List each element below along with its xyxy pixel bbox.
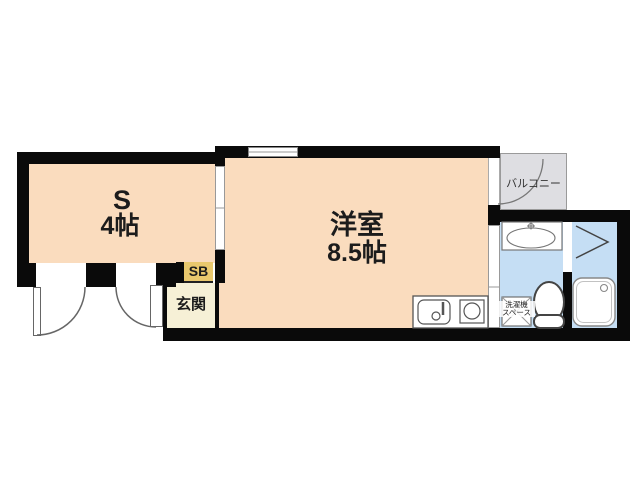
- wall-bottom-storage-seg1: [17, 263, 36, 287]
- window-top: [248, 147, 298, 157]
- wall-partition-top: [215, 146, 225, 166]
- storage-room-size: 4帖: [90, 213, 150, 239]
- storage-door-opening: [36, 263, 86, 287]
- balcony-door-opening: [488, 158, 500, 205]
- bathroom-door-opening: [563, 222, 572, 272]
- storage-door-arc: [37, 287, 85, 335]
- partition-sliding-door: [215, 166, 225, 250]
- wall-bottom-main: [163, 328, 630, 341]
- wall-partition-bottom: [215, 250, 225, 283]
- western-room-size: 8.5帖: [317, 240, 397, 266]
- floor-plan: S 4帖 洋室 8.5帖 バルコニー 玄関 SB 洗濯機 スペース: [0, 0, 640, 480]
- laundry-space-label: 洗濯機 スペース: [498, 301, 535, 317]
- shoebox-label: SB: [184, 264, 213, 279]
- wall-bottom-storage-seg2: [86, 263, 116, 287]
- wall-below-balcony: [488, 210, 630, 222]
- storage-door-panel: [33, 287, 41, 336]
- balcony-label: バルコニー: [500, 179, 567, 191]
- laundry-space-label-line2: スペース: [498, 309, 535, 317]
- wall-top-storage: [17, 152, 225, 164]
- entrance-door-panel: [150, 285, 163, 327]
- wall-washroom-bathroom: [563, 272, 572, 328]
- wall-right: [617, 210, 630, 341]
- storage-room-name: S: [92, 186, 152, 214]
- entrance-door-opening: [116, 263, 156, 287]
- western-room-name: 洋室: [317, 211, 397, 239]
- wall-shoebox-left: [176, 262, 184, 283]
- wall-entrance-right: [215, 283, 219, 328]
- bathroom-floor: [572, 222, 617, 328]
- entrance-label: 玄関: [167, 297, 215, 313]
